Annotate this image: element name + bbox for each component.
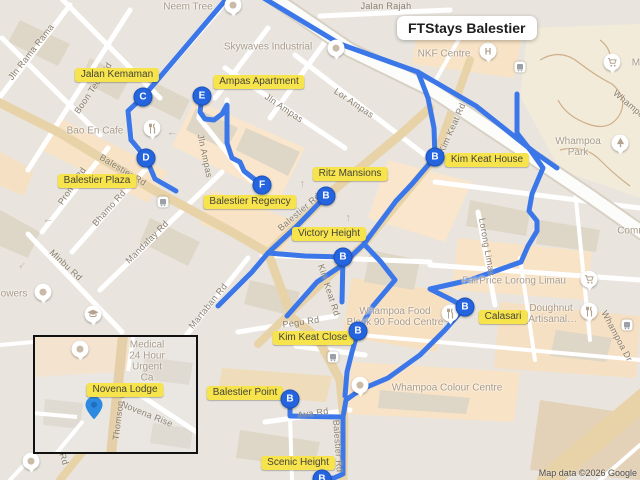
dot-icon[interactable]: [328, 40, 345, 57]
bus-icon[interactable]: [328, 352, 339, 363]
property-label-ampas-apartment[interactable]: Ampas Apartment: [213, 75, 304, 89]
poi-label-doughnut-artisanal: Doughnut (Artisanal…: [525, 303, 577, 325]
road-arrow-icon: →: [295, 179, 307, 190]
property-label-scenic-height[interactable]: Scenic Height: [261, 456, 335, 470]
map-title-card: FTStays Balestier: [397, 16, 537, 40]
map-attribution: Map data ©2026 Google: [539, 468, 637, 478]
tree-icon[interactable]: [612, 135, 629, 152]
marker-f-balestier-regency[interactable]: F: [253, 176, 272, 195]
poi-label-whampoa-park: Whampoa Park: [547, 136, 609, 158]
marker-d-balestier-plaza[interactable]: D: [137, 149, 156, 168]
cart-icon[interactable]: [581, 271, 598, 288]
marker-b-kim-keat-house[interactable]: B: [426, 148, 445, 167]
school-icon[interactable]: [85, 306, 102, 323]
property-label-jalan-kemaman[interactable]: Jalan Kemaman: [75, 68, 159, 82]
poi-label-owers: owers: [1, 289, 28, 300]
bus-icon[interactable]: [622, 320, 633, 331]
food-icon[interactable]: [581, 303, 598, 320]
property-label-kim-keat-house[interactable]: Kim Keat House: [445, 153, 529, 167]
bus-icon[interactable]: [158, 197, 169, 208]
road-arrow-icon: →: [167, 129, 178, 141]
poi-label-thomson-medical-24-hour-urgent-ca: Thomson Medical 24 Hour Urgent Ca: [126, 335, 168, 384]
map-title: FTStays Balestier: [408, 20, 526, 36]
property-label-balestier-point[interactable]: Balestier Point: [207, 386, 283, 400]
poi-label-fairprice-lorong-limau: FairPrice Lorong Limau: [462, 276, 566, 287]
location-pin-icon[interactable]: [86, 396, 103, 424]
property-label-novena-lodge[interactable]: Novena Lodge: [86, 383, 163, 397]
street-label-jalan-rajah: Jalan Rajah: [361, 1, 412, 11]
cart-icon[interactable]: [604, 54, 621, 71]
property-label-victory-height[interactable]: Victory Height: [292, 227, 366, 241]
poi-label-whampoa-colour-centre: Whampoa Colour Centre: [392, 383, 503, 394]
marker-c-jalan-kemaman[interactable]: C: [134, 88, 153, 107]
marker-b-balestier-point[interactable]: B: [281, 390, 300, 409]
marker-b-calasari[interactable]: B: [456, 298, 475, 317]
dot-icon[interactable]: [23, 453, 40, 470]
poi-label-mi: Mi: [632, 58, 640, 69]
poi-label-nkf-centre: NKF Centre: [418, 49, 471, 60]
road-arrow-icon: →: [341, 213, 353, 224]
property-label-ritz-mansions[interactable]: Ritz Mansions: [313, 167, 388, 181]
poi-label-neem-tree: Neem Tree: [163, 2, 212, 13]
poi-label-bao-en-cafe: Bao En Cafe: [67, 126, 124, 137]
marker-b-ritz-mansions[interactable]: B: [317, 187, 336, 206]
property-label-calasari[interactable]: Calasari: [479, 310, 528, 324]
marker-b-kim-keat-close[interactable]: B: [349, 322, 368, 341]
property-label-balestier-plaza[interactable]: Balestier Plaza: [58, 174, 137, 188]
map-canvas[interactable]: Jln Rama RamaBoon Teck RdJalan RajahJln …: [0, 0, 640, 480]
property-label-balestier-regency[interactable]: Balestier Regency: [203, 195, 296, 209]
dot-icon[interactable]: [352, 377, 369, 394]
poi-label-communit: Communit: [617, 226, 640, 237]
hospital-icon[interactable]: H: [480, 43, 497, 60]
dot-icon[interactable]: [72, 341, 89, 358]
road-arrow-icon: →: [43, 216, 54, 228]
marker-e-ampas-apartment[interactable]: E: [193, 87, 212, 106]
marker-b-victory-height[interactable]: B: [334, 248, 353, 267]
inset-map-novena: Thomson Medical 24 Hour Urgent CaThomson…: [33, 335, 198, 454]
property-label-kim-keat-close[interactable]: Kim Keat Close: [273, 331, 354, 345]
poi-label-skywaves-industrial: Skywaves Industrial: [224, 42, 312, 53]
food-icon[interactable]: [144, 120, 161, 137]
dot-icon[interactable]: [35, 284, 52, 301]
bus-icon[interactable]: [515, 62, 526, 73]
